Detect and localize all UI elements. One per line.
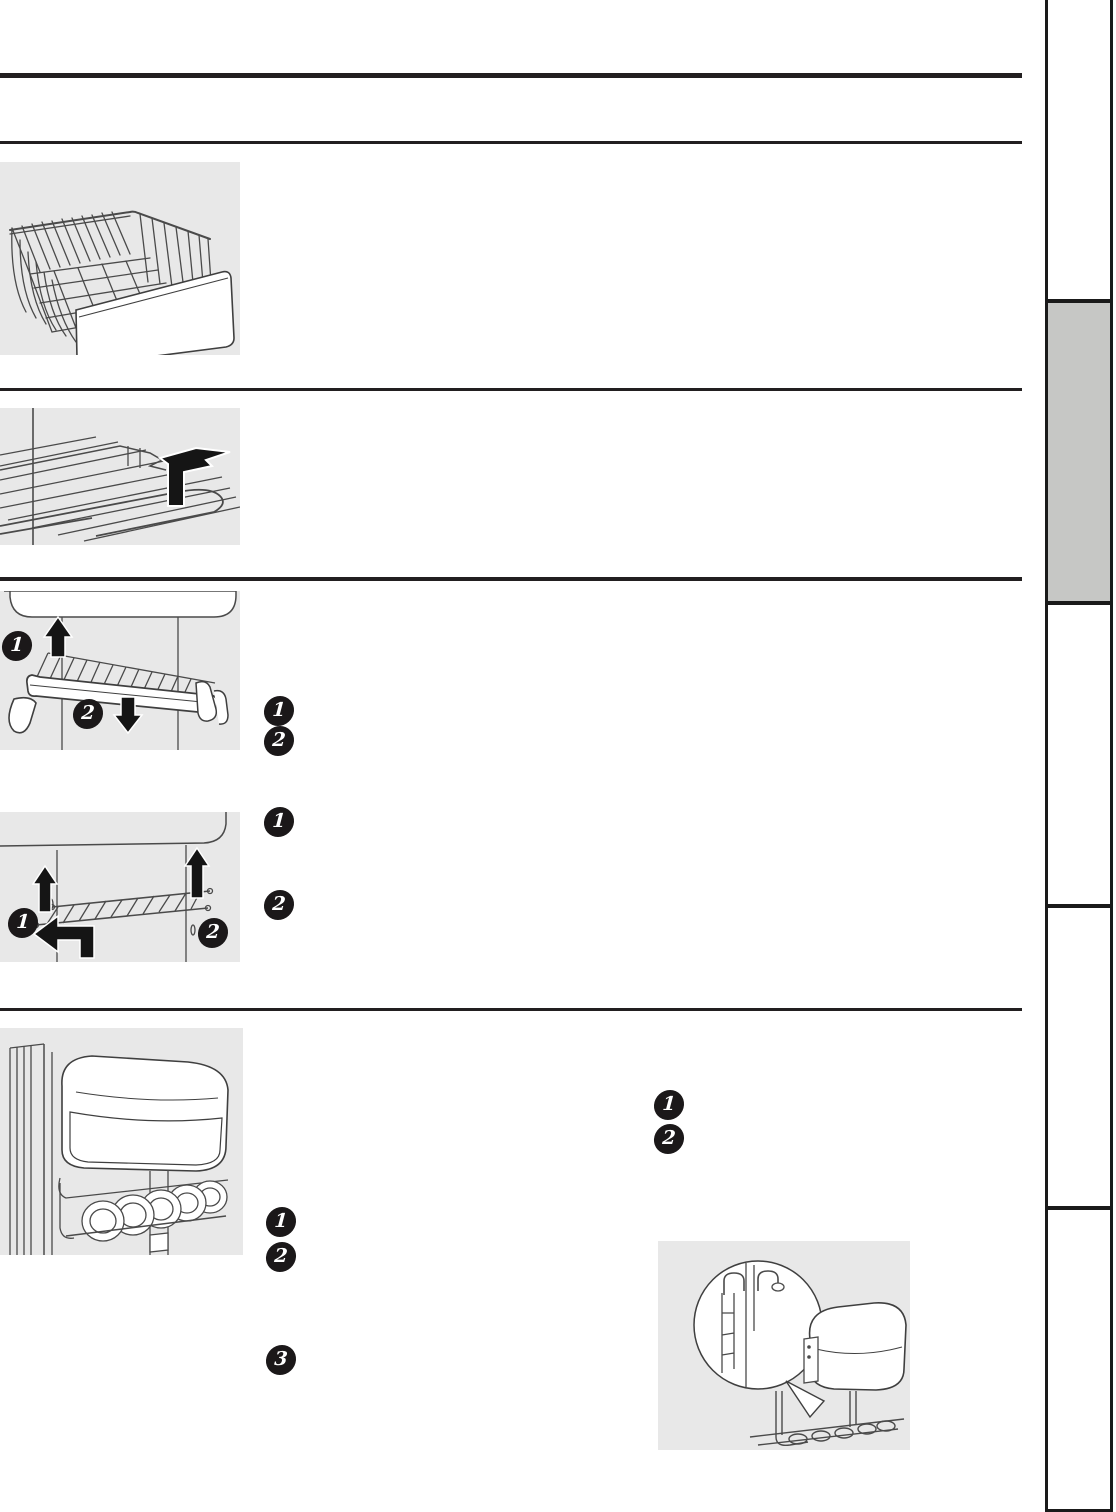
tab-section-5 (1048, 1210, 1110, 1512)
step-badge: 1 (263, 696, 295, 726)
covered-dairy-bin (62, 1056, 228, 1171)
section-rule-3 (0, 577, 1022, 581)
section-tab-strip (1045, 0, 1113, 1512)
wire-shelf-line-art (0, 408, 240, 545)
step-badge: 2 (653, 1124, 685, 1154)
illustration-wire-rack-replace: 1 2 (0, 812, 240, 962)
tilt-shelf-line-art (0, 591, 240, 750)
tab-section-2-active (1048, 303, 1110, 606)
section-rule-1 (0, 141, 1022, 144)
illustration-wire-shelf-remove (0, 408, 240, 545)
tab-section-1 (1048, 0, 1110, 303)
wire-can-rack (750, 1391, 904, 1445)
shelf-pivot-foot (9, 698, 36, 733)
step-badge: 2 (263, 726, 295, 756)
illustration-tilt-shelf-remove: 1 2 (0, 591, 240, 750)
illustration-door-bin-can-rack (0, 1028, 243, 1255)
section-rule-4 (0, 1008, 1022, 1011)
step-badge: 1 (653, 1090, 685, 1120)
manual-page: 1 2 1 2 1 2 1 2 (0, 0, 1116, 1512)
door-bin-line-art (0, 1028, 243, 1255)
tab-section-3 (1048, 605, 1110, 908)
step-badge: 3 (265, 1345, 297, 1375)
page-top-rule (0, 73, 1022, 78)
hook-detail-line-art (658, 1241, 910, 1450)
up-arrow-icon (44, 617, 72, 657)
up-arrow-icon (185, 848, 209, 898)
step-badge: 2 (263, 890, 295, 920)
illustration-can-rack-hook-detail (658, 1241, 910, 1450)
step-badge: 2 (265, 1242, 297, 1272)
tab-section-4 (1048, 908, 1110, 1211)
step-badge: 1 (265, 1207, 297, 1237)
illustration-freezer-basket (0, 162, 240, 355)
door-bin (810, 1303, 906, 1390)
cans-on-rack (82, 1181, 227, 1241)
step-badge: 1 (263, 807, 295, 837)
section-rule-2 (0, 388, 1022, 391)
freezer-basket-line-art (0, 162, 240, 355)
